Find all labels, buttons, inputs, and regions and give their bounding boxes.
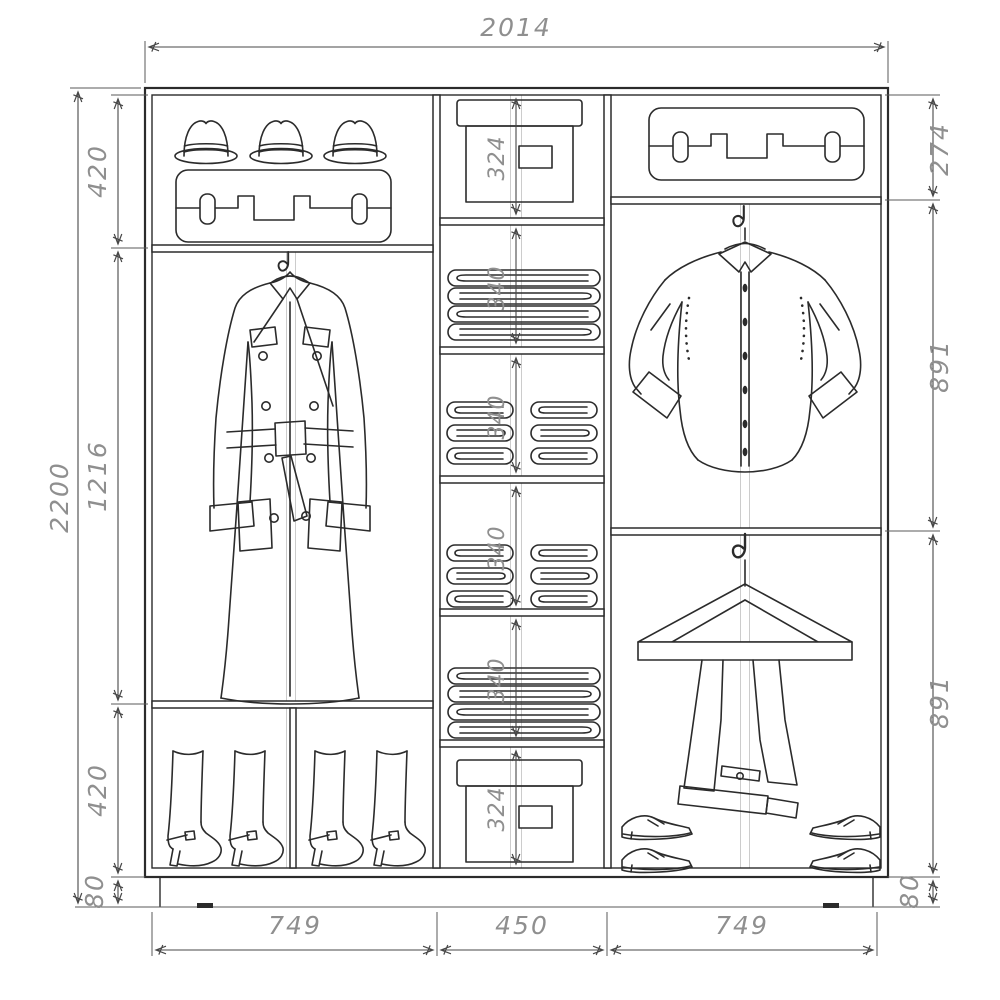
suitcase-icon xyxy=(649,108,864,180)
dim-shelf-6: 324 xyxy=(485,787,510,832)
dim-col-center: 450 xyxy=(495,911,549,940)
boot-divider xyxy=(290,708,296,868)
dim-right-upper: 891 xyxy=(925,339,954,393)
dress-shirt-icon xyxy=(629,228,860,472)
shelf-left-top xyxy=(152,245,433,252)
dim-shelf-3: 340 xyxy=(485,395,510,440)
shelf-center-5 xyxy=(440,740,604,747)
folded-clothes-icon xyxy=(448,668,600,738)
dim-left-top: 420 xyxy=(83,144,112,198)
shelf-center-2 xyxy=(440,347,604,354)
storage-box-icon xyxy=(457,760,582,862)
fedora-hat-icon xyxy=(175,121,237,164)
dim-shelf-1: 324 xyxy=(485,136,510,181)
shelf-center-3 xyxy=(440,476,604,483)
high-heel-boot-icon xyxy=(309,751,363,866)
dim-total-height: 2200 xyxy=(45,461,74,533)
dim-left-bottom: 420 xyxy=(83,763,112,817)
high-heel-boot-icon xyxy=(229,751,283,866)
dress-shoe-icon xyxy=(810,816,880,840)
folded-clothes-icon xyxy=(531,545,597,607)
dim-left-plinth: 80 xyxy=(80,873,109,909)
folded-clothes-icon xyxy=(448,270,600,340)
dim-col-left: 749 xyxy=(268,911,322,940)
dim-total-width: 2014 xyxy=(480,13,552,42)
shelf-center-1 xyxy=(440,218,604,225)
dim-right-top: 274 xyxy=(925,122,954,176)
dim-shelf-5: 340 xyxy=(485,658,510,703)
partition-right xyxy=(604,95,611,868)
foot-left xyxy=(197,903,213,908)
dim-right-lower: 891 xyxy=(925,675,954,729)
dim-right-plinth: 80 xyxy=(895,873,924,909)
folded-clothes-icon xyxy=(531,402,597,464)
dim-shelf-2: 340 xyxy=(485,266,510,311)
storage-box-icon xyxy=(457,100,582,202)
dress-shoe-icon xyxy=(622,816,692,840)
high-heel-boot-icon xyxy=(167,751,221,866)
hook-icon xyxy=(733,206,743,226)
trousers-hanger-icon xyxy=(638,560,852,818)
plinth-sides xyxy=(160,877,873,907)
shelf-right-top xyxy=(611,197,881,204)
dimension-annotations: 2014 2200 420 1216 420 80 274 891 891 80… xyxy=(45,13,954,956)
foot-right xyxy=(823,903,839,908)
drawing-canvas: 2014 2200 420 1216 420 80 274 891 891 80… xyxy=(0,0,1000,1000)
fedora-hat-icon xyxy=(324,121,386,164)
dim-col-right: 749 xyxy=(715,911,769,940)
high-heel-boot-icon xyxy=(371,751,425,866)
fedora-hat-icon xyxy=(250,121,312,164)
dress-shoe-icon xyxy=(810,849,880,873)
partition-left xyxy=(433,95,440,868)
wardrobe-technical-drawing: 2014 2200 420 1216 420 80 274 891 891 80… xyxy=(0,0,1000,1000)
hook-icon xyxy=(733,534,745,557)
right-column-contents xyxy=(622,108,880,872)
shelf-center-4 xyxy=(440,609,604,616)
dress-shoe-icon xyxy=(622,849,692,873)
suitcase-icon xyxy=(176,170,391,242)
trench-coat-icon xyxy=(210,272,370,704)
dim-shelf-4: 340 xyxy=(485,526,510,571)
dim-left-middle: 1216 xyxy=(83,440,112,512)
